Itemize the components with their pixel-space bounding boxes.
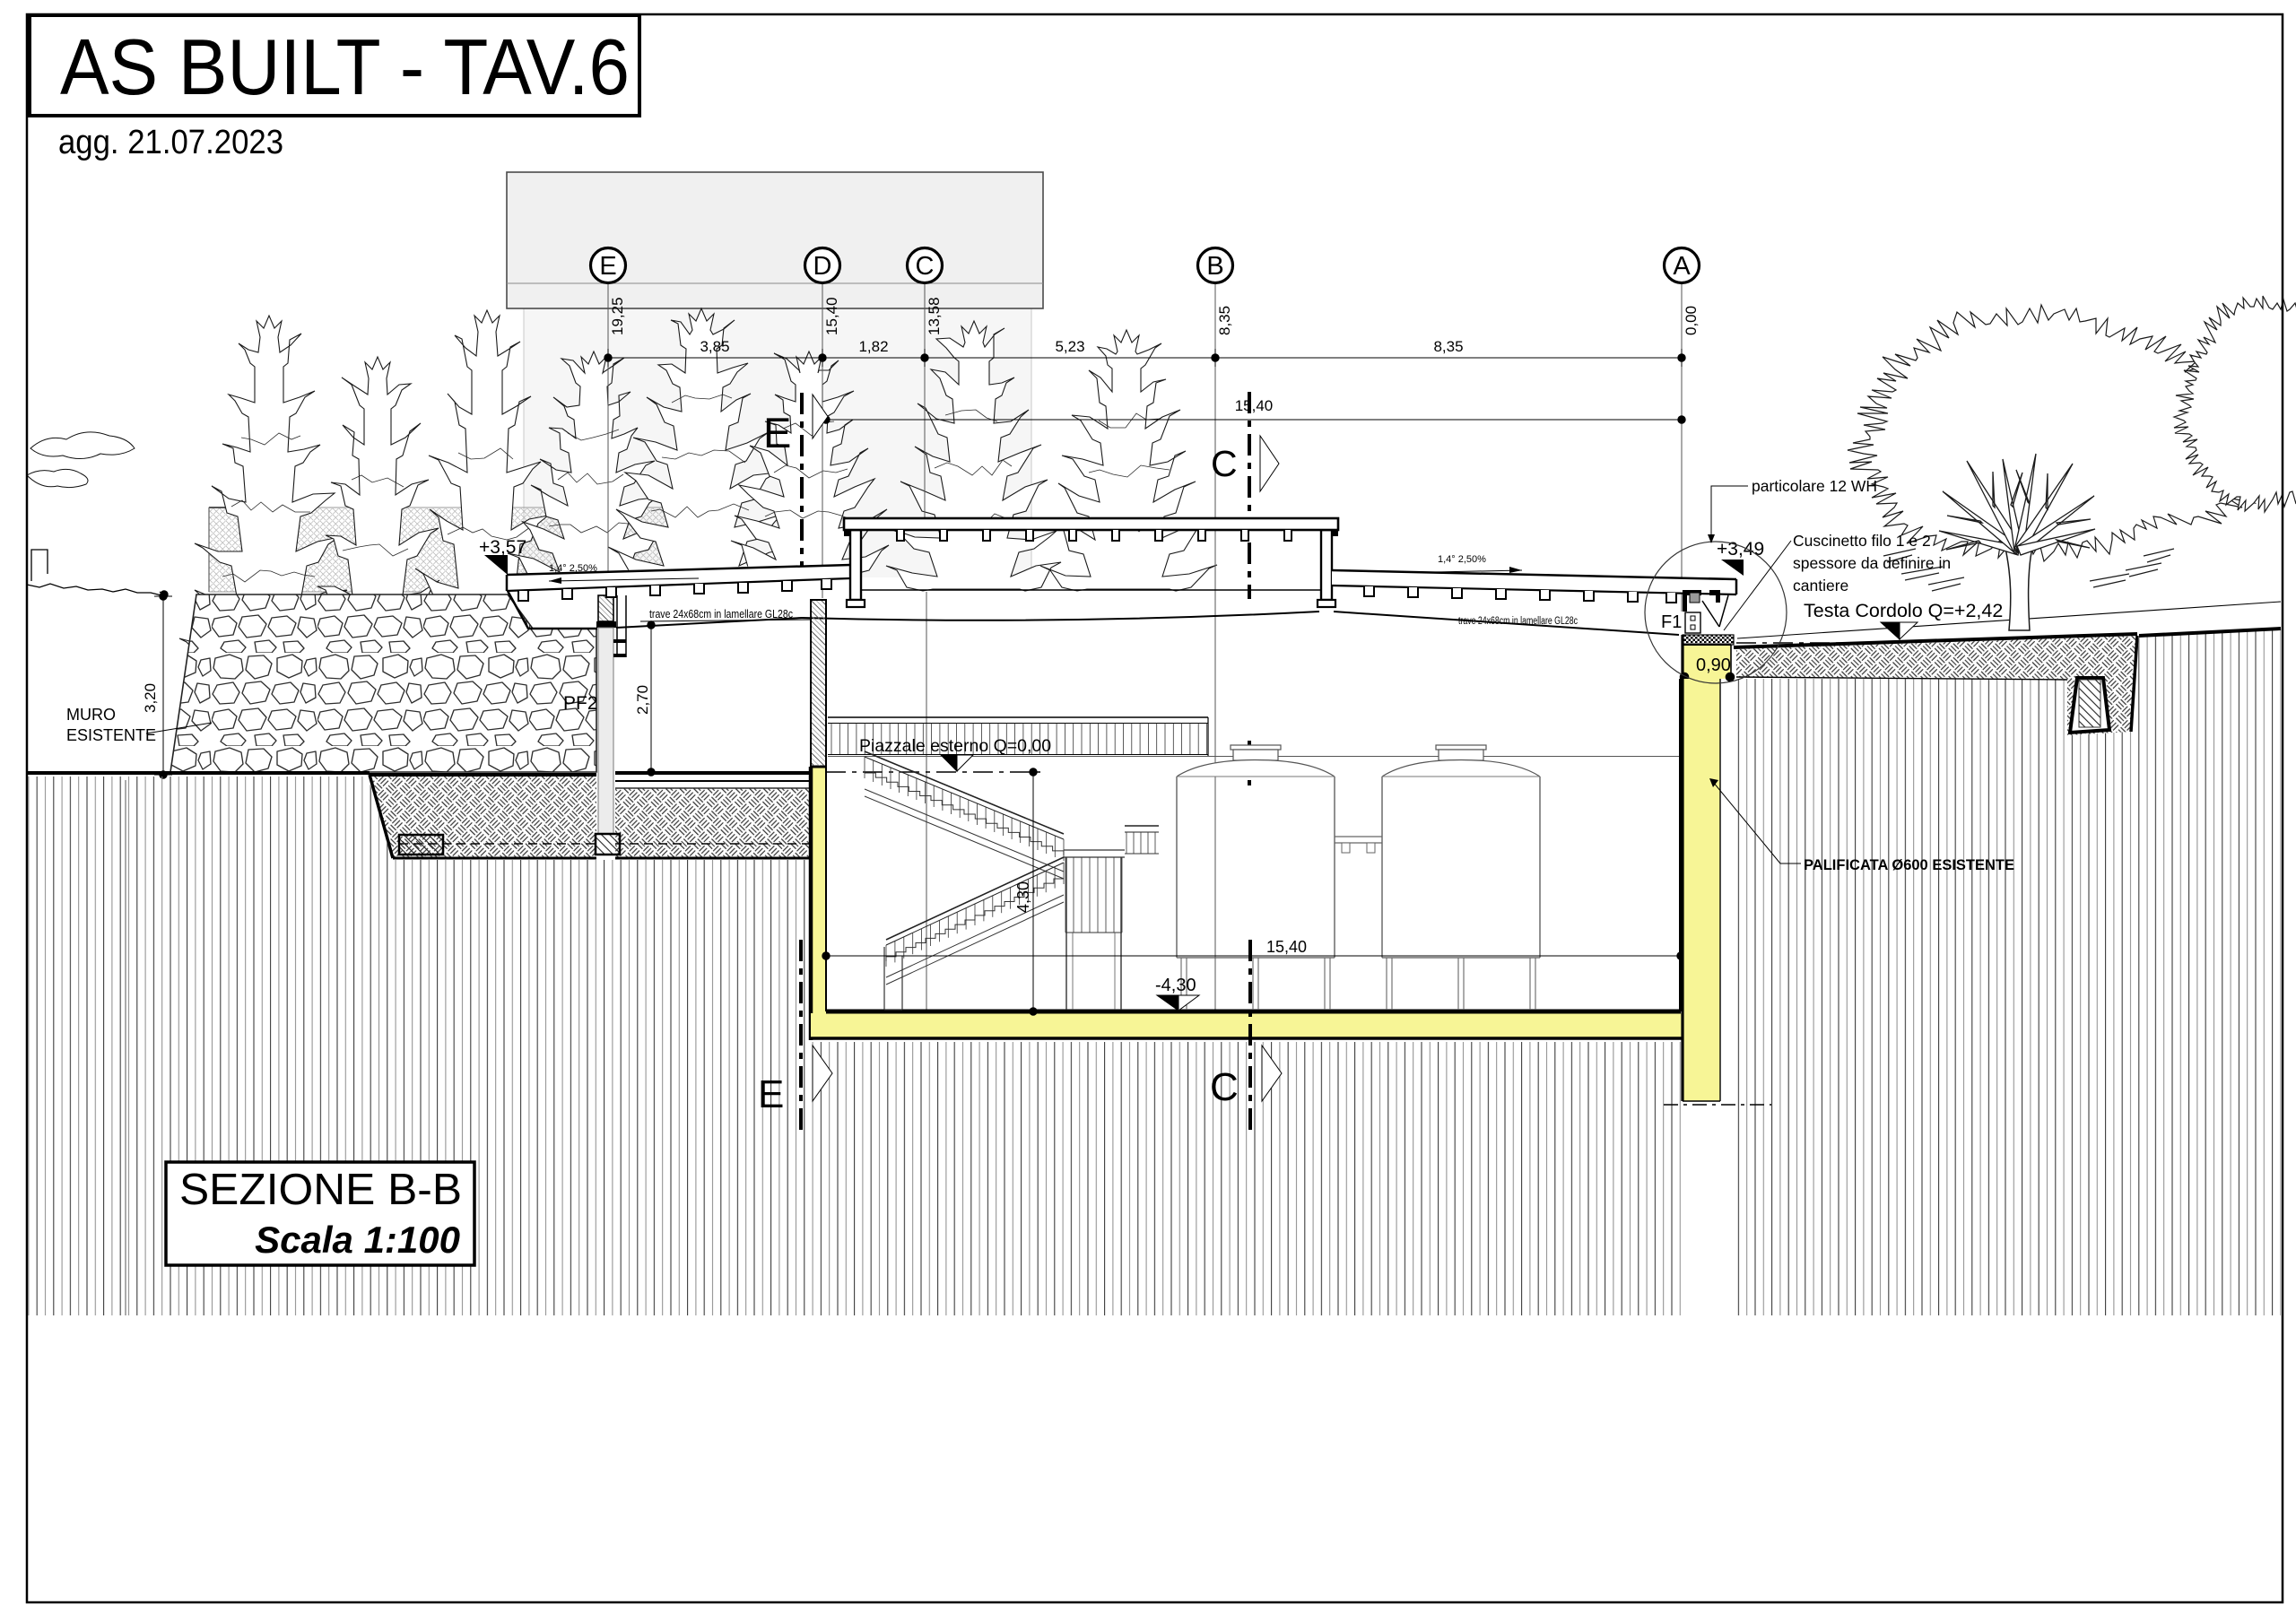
svg-text:1,82: 1,82 — [858, 338, 888, 355]
svg-text:8,35: 8,35 — [1216, 306, 1233, 335]
svg-text:PALIFICATA Ø600 ESISTENTE: PALIFICATA Ø600 ESISTENTE — [1804, 857, 2014, 873]
svg-text:3,20: 3,20 — [142, 683, 159, 713]
svg-text:trave 24x68cm in lamellare GL2: trave 24x68cm in lamellare GL28c — [649, 608, 793, 620]
svg-text:15,40: 15,40 — [1235, 397, 1274, 414]
svg-text:A: A — [1673, 252, 1691, 281]
svg-text:Scala 1:100: Scala 1:100 — [255, 1219, 460, 1261]
svg-text:5,23: 5,23 — [1055, 338, 1084, 355]
svg-text:Cuscinetto filo 1 e 2: Cuscinetto filo 1 e 2 — [1793, 532, 1931, 550]
svg-text:4,30: 4,30 — [1014, 881, 1032, 913]
svg-text:ESISTENTE: ESISTENTE — [66, 726, 156, 744]
svg-text:cantiere: cantiere — [1793, 577, 1848, 594]
svg-text:1,4° 2,50%: 1,4° 2,50% — [1438, 554, 1486, 565]
svg-text:MURO: MURO — [66, 706, 116, 724]
svg-text:E: E — [758, 1072, 784, 1116]
svg-text:-4,30: -4,30 — [1155, 976, 1196, 995]
svg-text:particolare 12 WH: particolare 12 WH — [1752, 477, 1877, 495]
svg-text:Piazzale esterno Q=0,00: Piazzale esterno Q=0,00 — [859, 736, 1051, 756]
svg-text:B: B — [1206, 252, 1223, 281]
svg-text:0,90: 0,90 — [1696, 655, 1731, 675]
svg-text:15,40: 15,40 — [1266, 938, 1307, 956]
svg-text:C: C — [1210, 1065, 1239, 1109]
svg-text:+3,57: +3,57 — [479, 537, 526, 558]
svg-text:13,58: 13,58 — [926, 297, 943, 335]
svg-text:E: E — [763, 409, 791, 456]
svg-text:trave 24x68cm in lamellare GL2: trave 24x68cm in lamellare GL28c — [1458, 616, 1578, 627]
svg-text:AS BUILT - TAV.6: AS BUILT - TAV.6 — [60, 22, 630, 111]
svg-text:8,35: 8,35 — [1433, 338, 1463, 355]
svg-text:2,70: 2,70 — [634, 685, 651, 715]
svg-text:PF2: PF2 — [563, 693, 598, 714]
svg-text:D: D — [813, 252, 832, 281]
svg-text:3,85: 3,85 — [700, 338, 729, 355]
svg-text:15,40: 15,40 — [823, 297, 840, 335]
svg-text:C: C — [916, 252, 935, 281]
svg-text:C: C — [1211, 443, 1238, 484]
svg-text:SEZIONE B-B: SEZIONE B-B — [179, 1166, 462, 1214]
svg-text:agg. 21.07.2023: agg. 21.07.2023 — [58, 124, 283, 161]
svg-text:E: E — [599, 252, 616, 281]
svg-text:F1: F1 — [1661, 612, 1682, 632]
svg-text:19,25: 19,25 — [609, 297, 626, 335]
svg-text:Testa Cordolo Q=+2,42: Testa Cordolo Q=+2,42 — [1804, 600, 2003, 621]
svg-text:0,00: 0,00 — [1683, 306, 1700, 335]
svg-text:1,4° 2,50%: 1,4° 2,50% — [549, 563, 597, 574]
svg-text:spessore da definire in: spessore da definire in — [1793, 554, 1951, 572]
